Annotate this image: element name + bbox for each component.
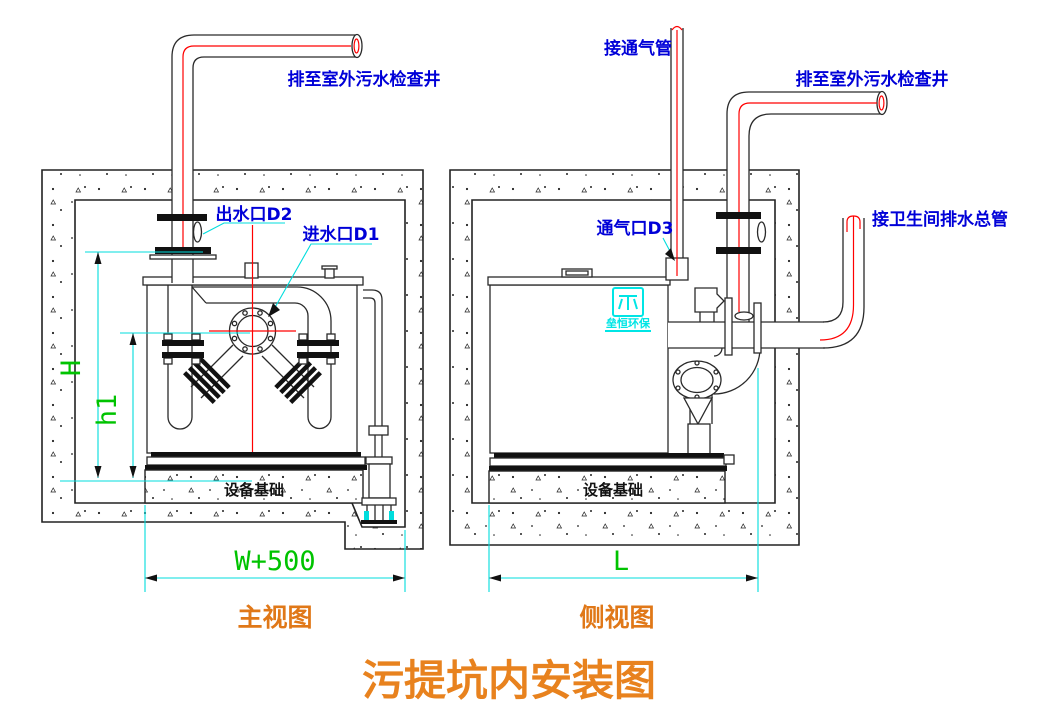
dim-height-H: H [56,360,87,376]
dim-height-h1: h1 [92,394,123,427]
front-foundation: 设备基础 [145,470,363,503]
side-foundation: 设备基础 [489,471,725,503]
side-discharge-label: 排至室外污水检查井 [796,69,949,90]
front-foundation-label: 设备基础 [224,481,284,499]
drawing-canvas: 设备基础 [0,0,1041,713]
side-view-caption: 侧视图 [579,603,654,632]
drawing-title: 污提坑内安装图 [362,656,656,705]
side-vent-connection-label: 接通气管 [604,38,672,59]
front-discharge-label: 排至室外污水检查井 [288,69,441,90]
front-inlet-label: 进水口D1 [303,224,380,245]
front-view-caption: 主视图 [237,603,312,632]
front-skid [145,452,367,470]
submersible-pump [361,290,397,524]
side-toilet-main-label: 接卫生间排水总管 [872,209,1008,230]
side-vent-port-label: 通气口D3 [597,218,674,239]
dim-length-L: L [613,546,629,577]
side-labels: 接通气管 排至室外污水检查井 通气口D3 接卫生间排水总管 [597,38,1008,261]
cad-installation-drawing: 设备基础 [0,0,1041,713]
side-foundation-label: 设备基础 [583,481,643,499]
dim-width-w500: W+500 [234,546,315,577]
brand-logo-text: 垒恒环保 [606,316,651,330]
side-inlet-assembly [668,288,825,454]
side-view: 垒恒环保 [450,27,1008,633]
side-skid [489,453,734,471]
front-outlet-label: 出水口D2 [216,204,293,225]
vent-pipe [666,27,688,281]
front-view: 设备基础 [42,35,441,633]
